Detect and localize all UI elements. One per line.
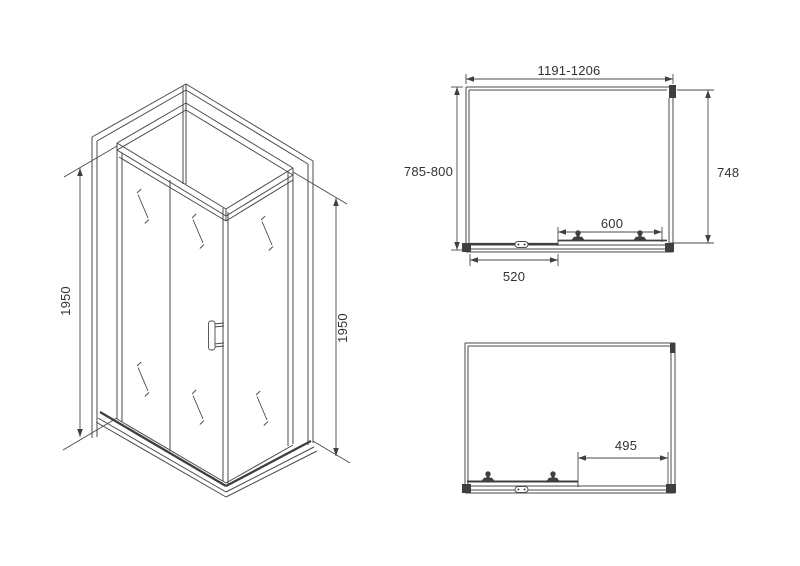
wall-profile: [669, 85, 676, 98]
dim-label-height-right: 1950: [335, 313, 350, 343]
wall-profile: [670, 343, 675, 353]
dimension-fixed-segment: 520: [470, 254, 558, 284]
dim-label-height-left: 1950: [58, 286, 73, 316]
technical-drawing-sheet: 1950 1950: [0, 0, 800, 566]
glass-hatch-icon: [137, 362, 149, 397]
plan-closed-track: [462, 230, 674, 252]
drawing-svg: 1950 1950: [0, 0, 800, 566]
dimension-door-span: 600: [558, 216, 662, 246]
dim-label-fixed-segment: 520: [503, 269, 525, 284]
glass-hatch-icon: [137, 189, 149, 224]
glass-hatch-icon: [256, 391, 268, 426]
top-frame: [117, 103, 293, 221]
panel-clamp-icon: [515, 487, 528, 493]
dim-label-door-opening: 495: [615, 438, 637, 453]
roller-icon: [482, 471, 495, 481]
glass-hatch-icon: [261, 216, 273, 251]
plan-open-outline: [465, 343, 675, 493]
plan-view-open: 495: [462, 343, 676, 493]
bottom-tray: [96, 412, 317, 497]
dimension-height-left: 1950: [58, 146, 117, 450]
wall-bracket: [665, 243, 674, 252]
plan-view-closed: 1191-1206 785-800 748 600: [404, 63, 739, 284]
plan-closed-outline: [466, 85, 676, 250]
door-handle-icon: [209, 321, 225, 350]
isometric-view: 1950 1950: [58, 84, 350, 497]
glass-hatch-icons: [137, 189, 273, 426]
wall-bracket: [666, 484, 676, 493]
dimension-overall-depth: 785-800: [404, 87, 463, 250]
dim-label-overall-width: 1191-1206: [537, 63, 600, 78]
dimension-door-opening: 495: [578, 438, 668, 484]
dimension-side-panel: 748: [670, 90, 739, 243]
plan-open-track: [462, 471, 676, 493]
dimension-height-right: 1950: [293, 172, 350, 463]
panel-clamp-icon: [515, 242, 528, 248]
dim-label-side-panel: 748: [717, 165, 739, 180]
roller-icon: [547, 471, 560, 481]
wall-bracket: [462, 243, 471, 252]
dimension-overall-width: 1191-1206: [466, 63, 673, 84]
frame-posts: [117, 150, 293, 484]
glass-hatch-icon: [192, 214, 204, 249]
glass-hatch-icon: [192, 390, 204, 425]
dim-label-door-span: 600: [601, 216, 623, 231]
wall-bracket: [462, 484, 471, 493]
dim-label-overall-depth: 785-800: [404, 164, 453, 179]
